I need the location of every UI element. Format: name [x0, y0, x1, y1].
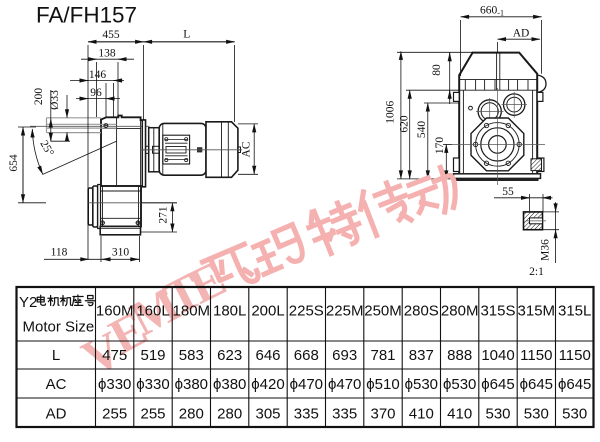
- svg-text:2:1: 2:1: [529, 266, 544, 278]
- svg-text:FA/FH157: FA/FH157: [36, 3, 137, 28]
- svg-text:888: 888: [447, 347, 472, 364]
- svg-text:623: 623: [217, 347, 242, 364]
- svg-text:620: 620: [398, 115, 410, 133]
- svg-text:693: 693: [332, 347, 357, 364]
- svg-text:1150: 1150: [520, 347, 552, 364]
- svg-text:AD: AD: [513, 28, 530, 40]
- svg-text:ϕ530: ϕ530: [443, 376, 476, 393]
- svg-text:530: 530: [562, 406, 587, 423]
- svg-text:Ø33: Ø33: [49, 90, 61, 110]
- svg-text:255: 255: [102, 406, 127, 423]
- svg-text:255: 255: [140, 406, 165, 423]
- svg-text:146: 146: [89, 69, 107, 81]
- svg-text:1150: 1150: [559, 347, 591, 364]
- svg-text:ϕ420: ϕ420: [251, 376, 284, 393]
- svg-text:Motor Size: Motor Size: [23, 319, 95, 336]
- svg-text:315L: 315L: [558, 303, 591, 320]
- svg-text:ϕ380: ϕ380: [213, 376, 246, 393]
- svg-text:AC: AC: [241, 141, 253, 157]
- svg-text:280S: 280S: [404, 303, 439, 320]
- svg-text:225S: 225S: [289, 303, 324, 320]
- svg-text:1006: 1006: [385, 101, 397, 124]
- svg-text:540: 540: [416, 121, 428, 139]
- svg-text:305: 305: [255, 406, 280, 423]
- svg-text:Y2: Y2: [19, 294, 37, 311]
- svg-text:315S: 315S: [480, 303, 515, 320]
- svg-text:271: 271: [158, 206, 170, 224]
- svg-text:315M: 315M: [518, 303, 556, 320]
- svg-text:335: 335: [294, 406, 319, 423]
- svg-text:310: 310: [112, 247, 130, 259]
- svg-text:200: 200: [33, 88, 45, 106]
- svg-text:ϕ470: ϕ470: [328, 376, 361, 393]
- svg-text:837: 837: [409, 347, 434, 364]
- svg-text:ϕ645: ϕ645: [520, 376, 553, 393]
- svg-text:138: 138: [98, 48, 116, 60]
- svg-text:180M: 180M: [173, 303, 211, 320]
- svg-text:654: 654: [8, 154, 20, 172]
- svg-text:781: 781: [370, 347, 395, 364]
- svg-text:ϕ510: ϕ510: [366, 376, 399, 393]
- svg-text:ϕ645: ϕ645: [558, 376, 591, 393]
- svg-text:250M: 250M: [364, 303, 402, 320]
- svg-text:180L: 180L: [213, 303, 246, 320]
- svg-text:ϕ330: ϕ330: [98, 376, 131, 393]
- svg-text:80: 80: [431, 64, 443, 76]
- svg-text:160L: 160L: [136, 303, 169, 320]
- svg-text:370: 370: [370, 406, 395, 423]
- svg-text:ϕ530: ϕ530: [405, 376, 438, 393]
- svg-text:410: 410: [447, 406, 472, 423]
- svg-text:M36: M36: [540, 239, 552, 261]
- svg-text:280: 280: [179, 406, 204, 423]
- svg-text:ϕ330: ϕ330: [136, 376, 169, 393]
- svg-text:55: 55: [502, 186, 514, 198]
- svg-text:335: 335: [332, 406, 357, 423]
- svg-text:530: 530: [485, 406, 510, 423]
- svg-text:583: 583: [179, 347, 204, 364]
- svg-text:1040: 1040: [481, 347, 514, 364]
- svg-text:646: 646: [255, 347, 280, 364]
- svg-text:118: 118: [51, 247, 68, 259]
- svg-text:L: L: [52, 347, 60, 364]
- svg-text:L: L: [183, 29, 190, 41]
- svg-text:160M: 160M: [96, 303, 134, 320]
- svg-text:519: 519: [140, 347, 165, 364]
- svg-text:475: 475: [102, 347, 127, 364]
- svg-text:410: 410: [409, 406, 434, 423]
- svg-text:530: 530: [524, 406, 549, 423]
- svg-text:AC: AC: [46, 376, 67, 393]
- svg-text:170: 170: [434, 137, 446, 155]
- svg-text:660-1: 660-1: [480, 5, 504, 18]
- svg-text:280: 280: [217, 406, 242, 423]
- svg-text:668: 668: [294, 347, 319, 364]
- svg-text:200L: 200L: [251, 303, 284, 320]
- svg-text:ϕ380: ϕ380: [175, 376, 208, 393]
- svg-text:ϕ645: ϕ645: [481, 376, 514, 393]
- svg-text:280M: 280M: [441, 303, 479, 320]
- svg-text:225M: 225M: [326, 303, 364, 320]
- svg-text:96: 96: [90, 87, 102, 99]
- svg-text:AD: AD: [46, 406, 67, 423]
- svg-text:455: 455: [102, 29, 120, 41]
- svg-text:ϕ470: ϕ470: [290, 376, 323, 393]
